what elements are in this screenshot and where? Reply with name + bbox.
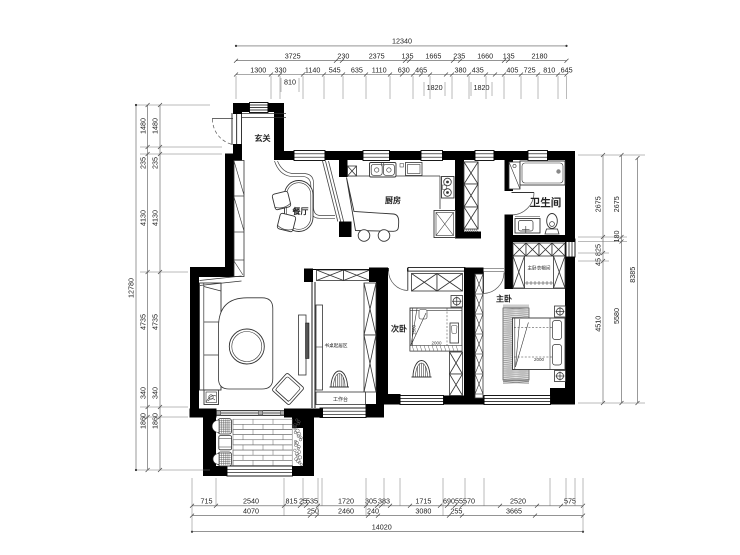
svg-text:630: 630: [398, 65, 410, 74]
svg-text:2375: 2375: [369, 51, 385, 60]
svg-text:3665: 3665: [506, 506, 522, 515]
svg-text:45: 45: [594, 258, 603, 266]
svg-text:330: 330: [275, 65, 287, 74]
svg-text:书桌起居区: 书桌起居区: [325, 342, 348, 349]
svg-text:4130: 4130: [138, 210, 147, 226]
svg-text:55: 55: [455, 496, 463, 505]
svg-text:1110: 1110: [372, 65, 387, 74]
svg-text:1860: 1860: [151, 413, 160, 429]
svg-text:435: 435: [472, 65, 484, 74]
svg-text:玄关: 玄关: [255, 133, 271, 143]
svg-text:2540: 2540: [243, 496, 259, 505]
svg-text:1480: 1480: [138, 118, 147, 134]
svg-text:1480: 1480: [151, 118, 160, 134]
svg-text:235: 235: [151, 157, 160, 169]
svg-text:465: 465: [415, 65, 427, 74]
svg-text:2675: 2675: [612, 196, 621, 212]
svg-text:635: 635: [351, 65, 363, 74]
svg-text:8385: 8385: [628, 267, 637, 283]
svg-text:1820: 1820: [427, 83, 443, 92]
svg-text:250: 250: [307, 506, 319, 515]
svg-text:690: 690: [443, 496, 455, 505]
svg-text:825: 825: [594, 244, 603, 256]
svg-text:1140: 1140: [305, 65, 320, 74]
svg-text:255: 255: [450, 506, 462, 515]
svg-text:1300: 1300: [250, 65, 266, 74]
svg-text:2460: 2460: [338, 506, 354, 515]
svg-text:1720: 1720: [338, 496, 354, 505]
svg-text:180: 180: [612, 231, 621, 243]
svg-text:340: 340: [151, 387, 160, 399]
svg-text:2180: 2180: [532, 51, 548, 60]
svg-text:725: 725: [524, 65, 536, 74]
svg-text:餐厅: 餐厅: [292, 206, 309, 216]
svg-text:1500: 1500: [412, 324, 417, 335]
svg-text:4735: 4735: [151, 314, 160, 330]
svg-text:卫生间: 卫生间: [530, 196, 562, 209]
svg-text:135: 135: [402, 51, 414, 60]
svg-text:1820: 1820: [474, 83, 490, 92]
svg-text:3080: 3080: [415, 506, 431, 515]
svg-text:12780: 12780: [127, 278, 136, 298]
svg-text:工作台: 工作台: [333, 396, 348, 403]
svg-text:5580: 5580: [612, 308, 621, 324]
svg-text:4130: 4130: [151, 210, 160, 226]
svg-text:545: 545: [329, 65, 341, 74]
svg-text:135: 135: [503, 51, 515, 60]
svg-text:2520: 2520: [510, 496, 526, 505]
svg-text:12340: 12340: [392, 37, 412, 46]
svg-text:230: 230: [337, 51, 349, 60]
svg-text:2000: 2000: [431, 340, 442, 345]
svg-text:235: 235: [138, 157, 147, 169]
svg-text:1660: 1660: [477, 51, 493, 60]
svg-text:主卧: 主卧: [496, 294, 512, 304]
svg-text:1665: 1665: [425, 51, 441, 60]
svg-text:380: 380: [455, 65, 467, 74]
svg-text:645: 645: [561, 65, 573, 74]
svg-text:535: 535: [306, 496, 318, 505]
svg-text:4070: 4070: [243, 506, 259, 515]
svg-text:厨房: 厨房: [385, 195, 401, 205]
svg-text:340: 340: [138, 387, 147, 399]
svg-text:次卧: 次卧: [391, 324, 407, 334]
svg-text:1860: 1860: [138, 413, 147, 429]
svg-text:2675: 2675: [594, 196, 603, 212]
svg-text:305: 305: [365, 496, 377, 505]
svg-text:1715: 1715: [415, 496, 431, 505]
svg-text:240: 240: [367, 506, 379, 515]
svg-text:810: 810: [543, 65, 555, 74]
svg-text:3725: 3725: [285, 51, 301, 60]
svg-text:4735: 4735: [138, 314, 147, 330]
svg-text:405: 405: [506, 65, 518, 74]
svg-text:810: 810: [284, 78, 296, 87]
svg-text:主卧衣帽间: 主卧衣帽间: [528, 265, 551, 272]
svg-text:235: 235: [453, 51, 465, 60]
svg-text:14020: 14020: [372, 523, 392, 532]
svg-text:715: 715: [201, 496, 213, 505]
svg-text:815: 815: [286, 496, 298, 505]
svg-text:2000: 2000: [534, 357, 545, 362]
svg-text:4510: 4510: [594, 316, 603, 332]
